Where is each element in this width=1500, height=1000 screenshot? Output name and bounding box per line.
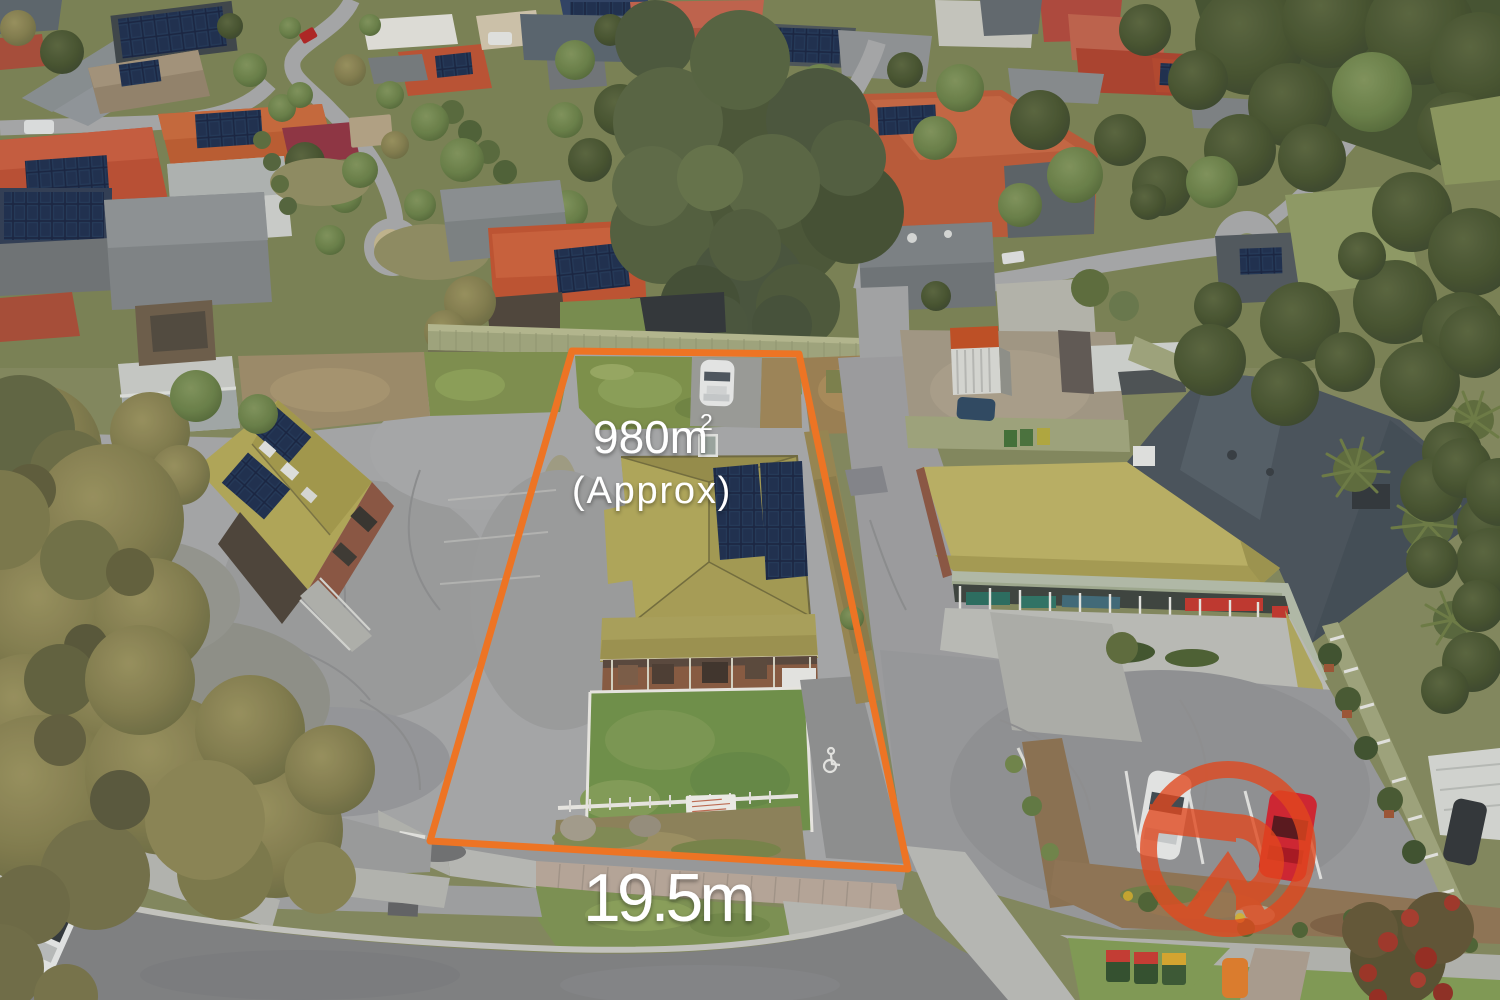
svg-text:19.5m: 19.5m (583, 860, 752, 936)
svg-text:(Approx): (Approx) (572, 470, 732, 512)
svg-text:980m: 980m (593, 411, 708, 463)
svg-text:2: 2 (700, 409, 713, 435)
